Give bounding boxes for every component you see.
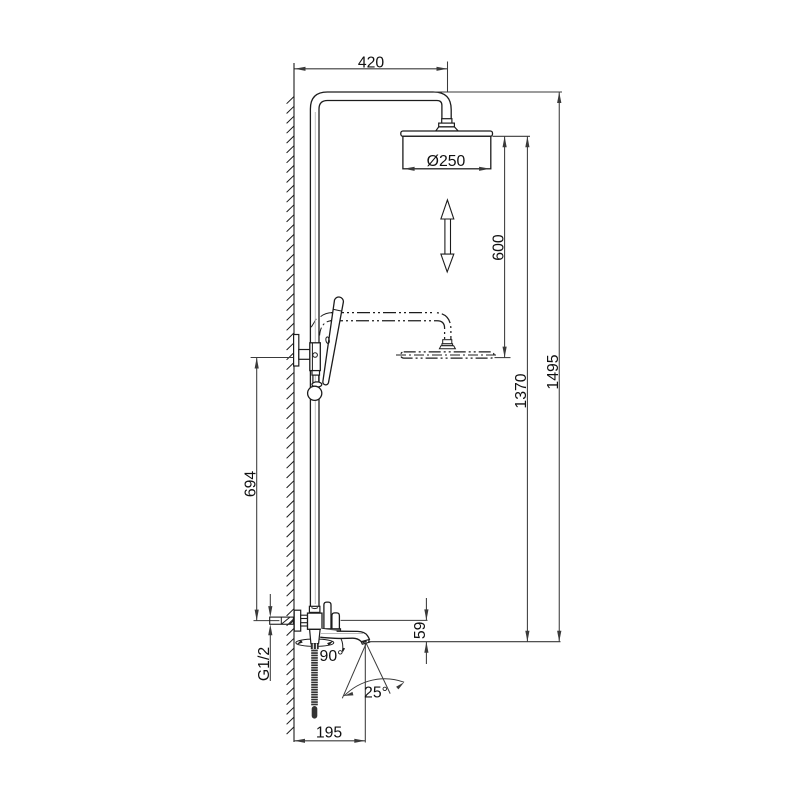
svg-text:59: 59 (412, 621, 429, 639)
svg-text:600: 600 (490, 234, 507, 261)
svg-text:Ø250: Ø250 (427, 153, 466, 170)
svg-text:195: 195 (316, 725, 343, 742)
svg-text:1370: 1370 (513, 373, 530, 408)
svg-text:90°: 90° (320, 648, 344, 665)
svg-text:25°: 25° (364, 685, 388, 702)
svg-text:1495: 1495 (545, 354, 562, 389)
svg-text:420: 420 (358, 54, 385, 71)
svg-text:694: 694 (242, 471, 259, 498)
svg-text:G1/2: G1/2 (256, 647, 273, 681)
